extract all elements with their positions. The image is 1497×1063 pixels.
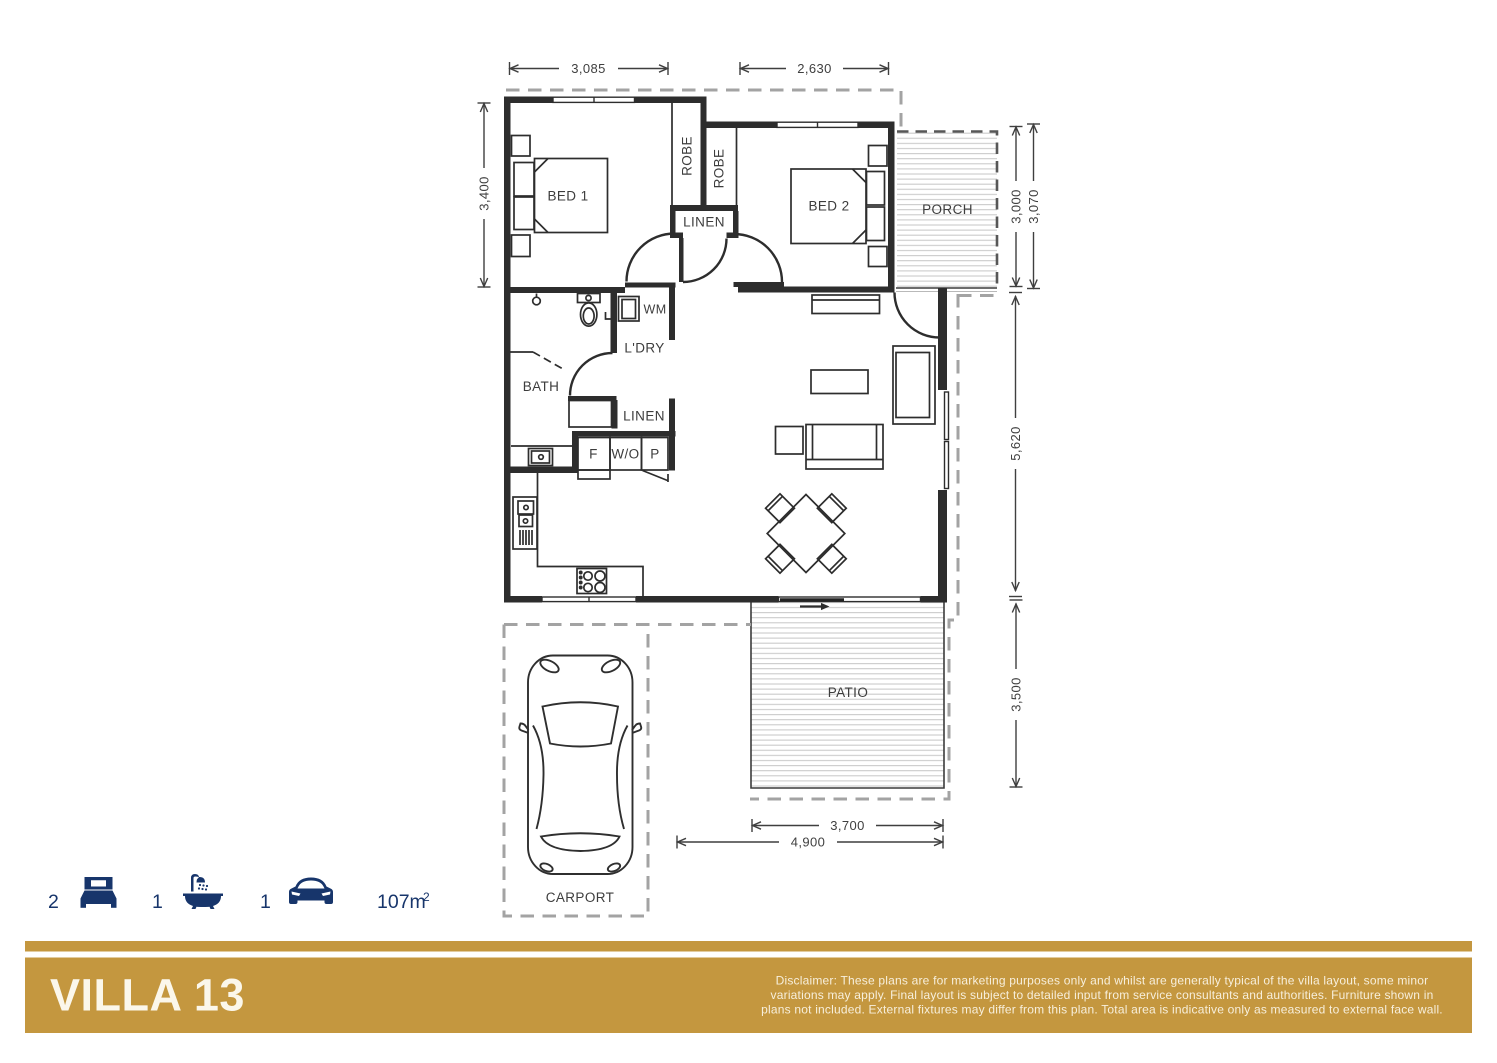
svg-text:VILLA 13: VILLA 13: [50, 970, 245, 1021]
svg-text:BATH: BATH: [523, 379, 560, 394]
svg-text:4,900: 4,900: [791, 835, 826, 850]
svg-text:2,630: 2,630: [797, 61, 832, 76]
svg-text:LINEN: LINEN: [623, 409, 665, 424]
svg-text:1: 1: [152, 891, 163, 913]
svg-text:variations may apply. Final la: variations may apply. Final layout is su…: [771, 988, 1434, 1002]
svg-text:BED 1: BED 1: [547, 189, 588, 204]
svg-text:5,620: 5,620: [1008, 426, 1023, 461]
svg-text:CARPORT: CARPORT: [546, 890, 615, 905]
svg-text:2: 2: [423, 890, 430, 904]
svg-text:LINEN: LINEN: [683, 215, 725, 230]
svg-text:3,000: 3,000: [1009, 189, 1024, 224]
svg-text:ROBE: ROBE: [680, 136, 695, 176]
svg-text:107m: 107m: [377, 891, 426, 913]
svg-text:P: P: [650, 447, 659, 462]
svg-text:WM: WM: [644, 303, 667, 317]
svg-text:Disclaimer: These plans are fo: Disclaimer: These plans are for marketin…: [776, 974, 1429, 988]
svg-text:1: 1: [260, 891, 271, 913]
svg-text:F: F: [589, 447, 598, 462]
svg-text:3,085: 3,085: [571, 61, 606, 76]
svg-text:W/O: W/O: [611, 447, 639, 462]
svg-text:ROBE: ROBE: [712, 149, 727, 189]
svg-text:3,400: 3,400: [477, 176, 492, 211]
svg-text:3,700: 3,700: [830, 818, 865, 833]
svg-text:2: 2: [48, 891, 59, 913]
svg-text:BED 2: BED 2: [808, 199, 849, 214]
svg-text:PATIO: PATIO: [828, 685, 869, 700]
svg-text:PORCH: PORCH: [922, 202, 973, 217]
svg-text:3,070: 3,070: [1026, 189, 1041, 224]
svg-text:L'DRY: L'DRY: [624, 341, 664, 356]
svg-text:plans not included. External f: plans not included. External fixtures ma…: [761, 1003, 1443, 1017]
svg-text:3,500: 3,500: [1009, 677, 1024, 712]
